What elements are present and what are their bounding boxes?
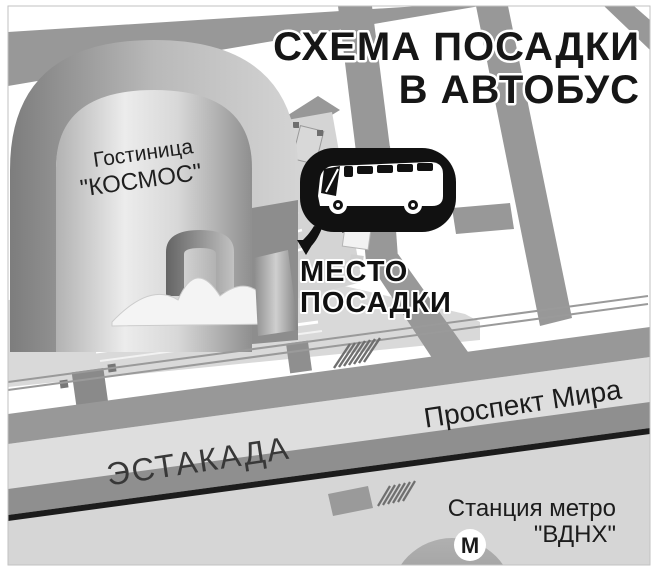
metro-m-letter: М	[461, 533, 479, 558]
bus-boarding-scheme-map: Гостиница "КОСМОС" М Станция метро "ВДНХ…	[0, 0, 668, 577]
boarding-label-line1: МЕСТО	[300, 256, 408, 288]
road-branch-bus	[452, 203, 514, 234]
page-title-line1: СХЕМА ПОСАДКИ	[273, 25, 640, 69]
boarding-label-line2: ПОСАДКИ	[300, 287, 452, 319]
rail-pylon	[286, 341, 312, 374]
map-canvas: Гостиница "КОСМОС" М Станция метро "ВДНХ…	[0, 0, 668, 577]
metro-station-label-line2: "ВДНХ"	[534, 521, 616, 548]
page-title-line2: В АВТОБУС	[399, 68, 640, 112]
rail-post	[59, 379, 68, 388]
metro-station-label-line1: Станция метро	[448, 495, 616, 522]
hotel-building: Гостиница "КОСМОС"	[10, 40, 298, 352]
